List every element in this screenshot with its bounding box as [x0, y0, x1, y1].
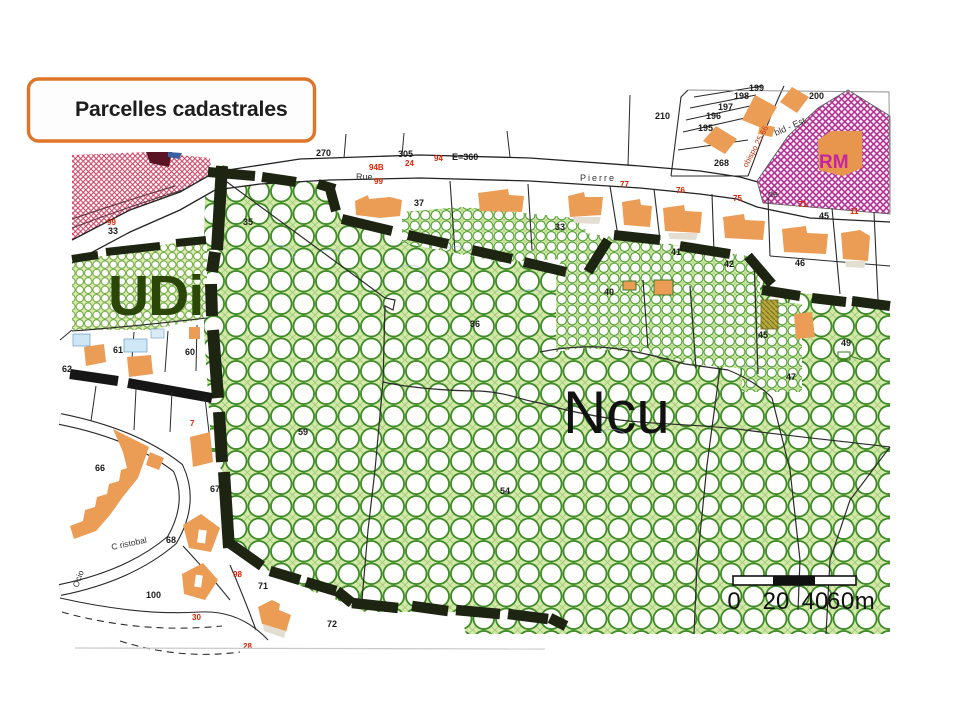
svg-text:99: 99: [374, 177, 383, 186]
svg-text:76: 76: [676, 186, 685, 195]
svg-text:197: 197: [718, 102, 733, 112]
svg-text:de: de: [768, 189, 778, 199]
svg-text:62: 62: [62, 364, 72, 374]
svg-text:UDi: UDi: [108, 264, 203, 328]
svg-text:100: 100: [146, 590, 161, 600]
svg-text:200: 200: [809, 91, 824, 101]
svg-text:RM: RM: [819, 152, 849, 173]
svg-text:30: 30: [192, 613, 201, 622]
svg-text:40: 40: [604, 287, 614, 297]
svg-text:71: 71: [258, 581, 268, 591]
svg-text:E=360: E=360: [452, 152, 478, 162]
svg-text:67: 67: [210, 484, 220, 494]
svg-text:24: 24: [405, 159, 414, 168]
svg-text:54: 54: [500, 486, 510, 496]
svg-text:195: 195: [698, 123, 713, 133]
svg-text:33: 33: [108, 226, 118, 236]
svg-text:305: 305: [398, 149, 413, 159]
svg-text:66: 66: [95, 463, 105, 473]
svg-text:35: 35: [243, 217, 253, 227]
svg-text:59: 59: [298, 427, 308, 437]
svg-text:72: 72: [327, 619, 337, 629]
svg-text:45: 45: [758, 330, 768, 340]
svg-text:20: 20: [763, 588, 790, 615]
svg-text:49: 49: [841, 338, 851, 348]
svg-text:60m: 60m: [827, 588, 875, 615]
svg-text:98: 98: [233, 570, 242, 579]
svg-text:47: 47: [786, 372, 796, 382]
svg-text:46: 46: [795, 258, 805, 268]
svg-text:0: 0: [727, 588, 740, 615]
svg-text:198: 198: [734, 91, 749, 101]
svg-text:68: 68: [166, 535, 176, 545]
svg-text:94B: 94B: [369, 163, 384, 172]
svg-text:270: 270: [316, 148, 331, 158]
svg-text:60: 60: [185, 347, 195, 357]
svg-text:199: 199: [749, 83, 764, 93]
svg-text:36: 36: [470, 319, 480, 329]
svg-text:11: 11: [850, 207, 859, 216]
svg-text:37: 37: [414, 198, 424, 208]
svg-text:7: 7: [190, 419, 195, 428]
svg-text:33: 33: [555, 222, 565, 232]
svg-text:Parcelles cadastrales: Parcelles cadastrales: [75, 97, 287, 121]
svg-text:Rue: Rue: [356, 172, 373, 182]
svg-text:77: 77: [620, 180, 629, 189]
svg-text:Pierre: Pierre: [580, 173, 616, 183]
svg-text:Ncu: Ncu: [563, 379, 670, 446]
svg-text:28: 28: [243, 642, 252, 651]
svg-text:45: 45: [819, 211, 829, 221]
svg-text:40: 40: [802, 588, 829, 615]
svg-text:41: 41: [671, 247, 681, 257]
svg-text:42: 42: [724, 259, 734, 269]
svg-text:61: 61: [113, 345, 123, 355]
svg-text:71: 71: [798, 200, 807, 209]
svg-text:268: 268: [714, 158, 729, 168]
svg-text:75: 75: [733, 194, 742, 203]
svg-text:94: 94: [434, 154, 443, 163]
svg-text:210: 210: [655, 111, 670, 121]
svg-text:196: 196: [706, 111, 721, 121]
